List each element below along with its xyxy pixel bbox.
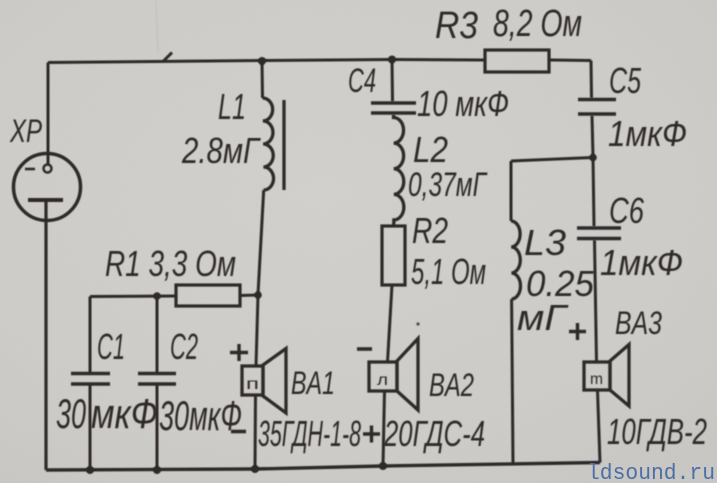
svg-text:35ГДН-1-8: 35ГДН-1-8 <box>258 413 361 454</box>
svg-text:C2: C2 <box>170 326 198 367</box>
svg-text:п: п <box>246 376 259 393</box>
svg-text:C4: C4 <box>348 62 376 100</box>
svg-text:30: 30 <box>56 390 86 437</box>
svg-text:C5: C5 <box>609 60 642 101</box>
svg-text:BA3: BA3 <box>615 305 662 341</box>
svg-text:C1: C1 <box>97 326 125 367</box>
svg-text:10 мкФ: 10 мкФ <box>417 83 509 124</box>
svg-text:C6: C6 <box>609 190 645 231</box>
svg-text:ldsound.ru: ldsound.ru <box>587 461 715 483</box>
svg-text:2.8мГ: 2.8мГ <box>181 130 261 171</box>
svg-text:R2: R2 <box>412 210 448 251</box>
svg-text:мГ: мГ <box>517 297 569 338</box>
svg-text:10ГДВ-2: 10ГДВ-2 <box>607 411 707 452</box>
svg-text:L1: L1 <box>218 86 246 127</box>
svg-text:0,37мГ: 0,37мГ <box>408 166 488 204</box>
svg-text:20ГДС-4: 20ГДС-4 <box>383 413 485 454</box>
svg-text:1мкФ: 1мкФ <box>608 113 687 154</box>
svg-text:R3: R3 <box>435 5 478 47</box>
svg-text:BA1: BA1 <box>291 365 335 401</box>
svg-text:L2: L2 <box>413 129 448 170</box>
svg-text:30мкФ: 30мкФ <box>159 392 242 439</box>
svg-text:R1 3,3 Ом: R1 3,3 Ом <box>105 243 236 284</box>
svg-text:л: л <box>377 372 388 389</box>
svg-text:5,1 Ом: 5,1 Ом <box>411 251 486 292</box>
svg-text:L3: L3 <box>524 222 566 263</box>
svg-text:m: m <box>590 371 603 388</box>
svg-text:мкФ: мкФ <box>91 390 158 437</box>
svg-text:BA2: BA2 <box>429 367 474 403</box>
svg-text:XP: XP <box>9 113 42 149</box>
svg-text:1мкФ: 1мкФ <box>600 242 683 283</box>
svg-text:8,2 Ом: 8,2 Ом <box>493 3 582 45</box>
